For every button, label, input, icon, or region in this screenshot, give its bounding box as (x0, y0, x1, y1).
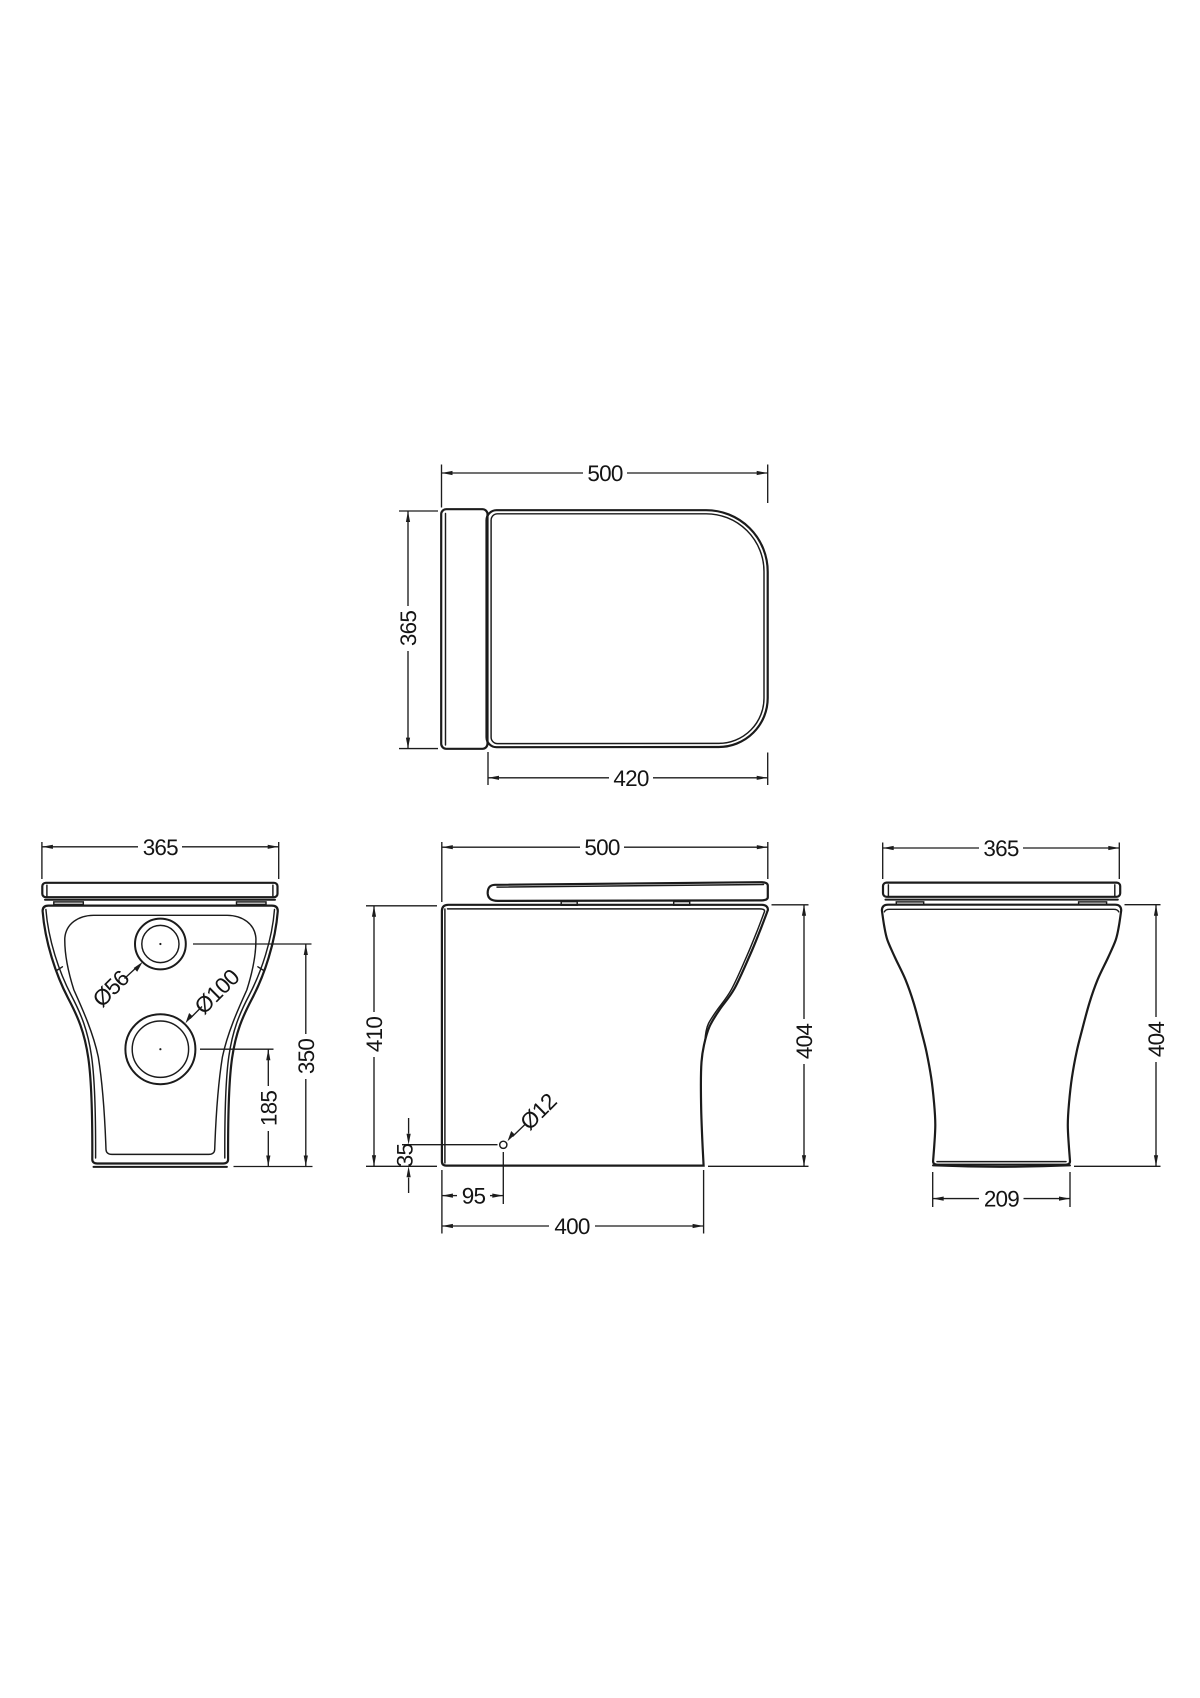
svg-text:209: 209 (984, 1187, 1019, 1212)
svg-text:420: 420 (613, 766, 648, 791)
svg-text:365: 365 (143, 835, 178, 860)
svg-text:365: 365 (396, 611, 421, 646)
svg-text:365: 365 (983, 836, 1018, 861)
svg-text:35: 35 (393, 1144, 418, 1168)
svg-text:95: 95 (462, 1184, 486, 1209)
svg-text:500: 500 (584, 835, 619, 860)
svg-text:400: 400 (554, 1214, 589, 1239)
svg-text:350: 350 (294, 1039, 319, 1074)
svg-text:404: 404 (1144, 1022, 1169, 1057)
svg-text:404: 404 (792, 1024, 817, 1059)
svg-text:410: 410 (362, 1017, 387, 1052)
svg-text:500: 500 (587, 461, 622, 486)
svg-text:185: 185 (256, 1091, 281, 1126)
